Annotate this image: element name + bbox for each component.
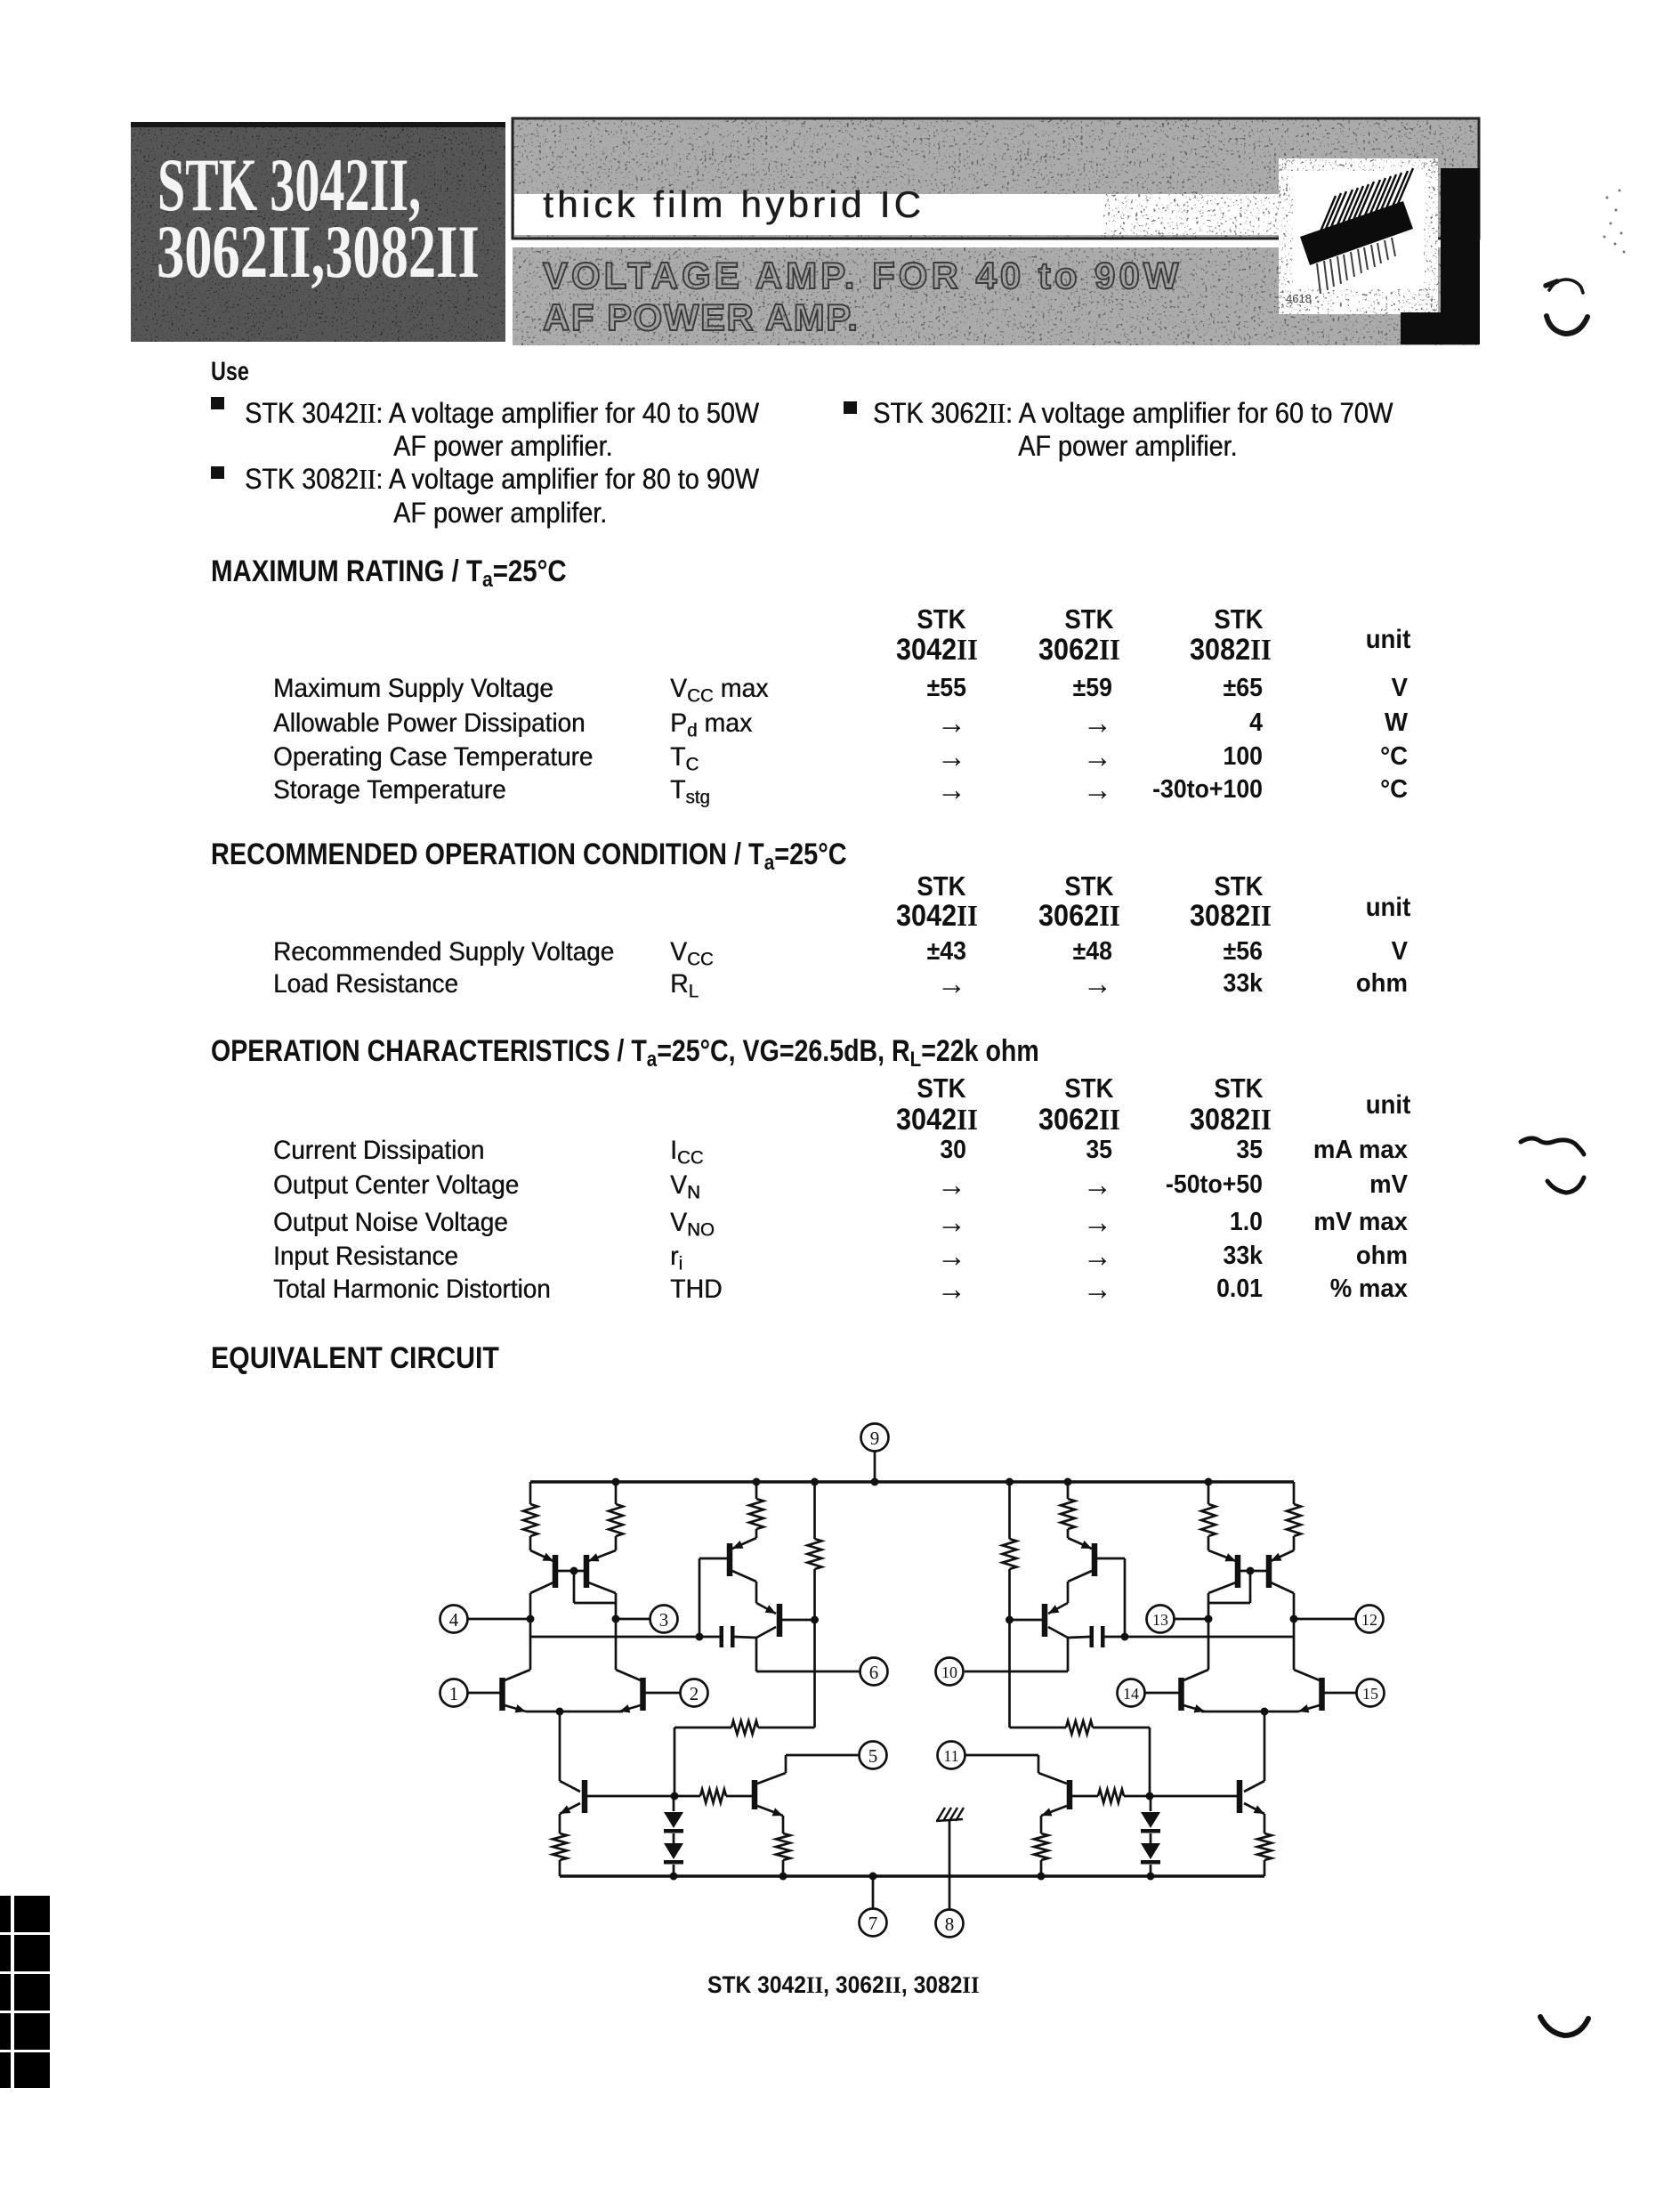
svg-text:15: 15 bbox=[1362, 1685, 1378, 1703]
svg-text:4: 4 bbox=[449, 1609, 459, 1631]
svg-text:9: 9 bbox=[870, 1428, 880, 1449]
svg-text:8: 8 bbox=[945, 1914, 955, 1935]
svg-text:12: 12 bbox=[1361, 1611, 1377, 1629]
svg-text:10: 10 bbox=[941, 1663, 957, 1681]
svg-text:3: 3 bbox=[659, 1609, 669, 1631]
svg-text:6: 6 bbox=[869, 1662, 879, 1683]
svg-text:11: 11 bbox=[943, 1747, 958, 1765]
svg-text:2: 2 bbox=[690, 1683, 699, 1704]
svg-text:5: 5 bbox=[868, 1745, 878, 1767]
svg-text:4618: 4618 bbox=[1286, 292, 1312, 305]
svg-text:7: 7 bbox=[868, 1913, 878, 1934]
svg-text:14: 14 bbox=[1123, 1685, 1139, 1703]
svg-text:1: 1 bbox=[449, 1683, 459, 1704]
svg-text:13: 13 bbox=[1152, 1611, 1168, 1629]
